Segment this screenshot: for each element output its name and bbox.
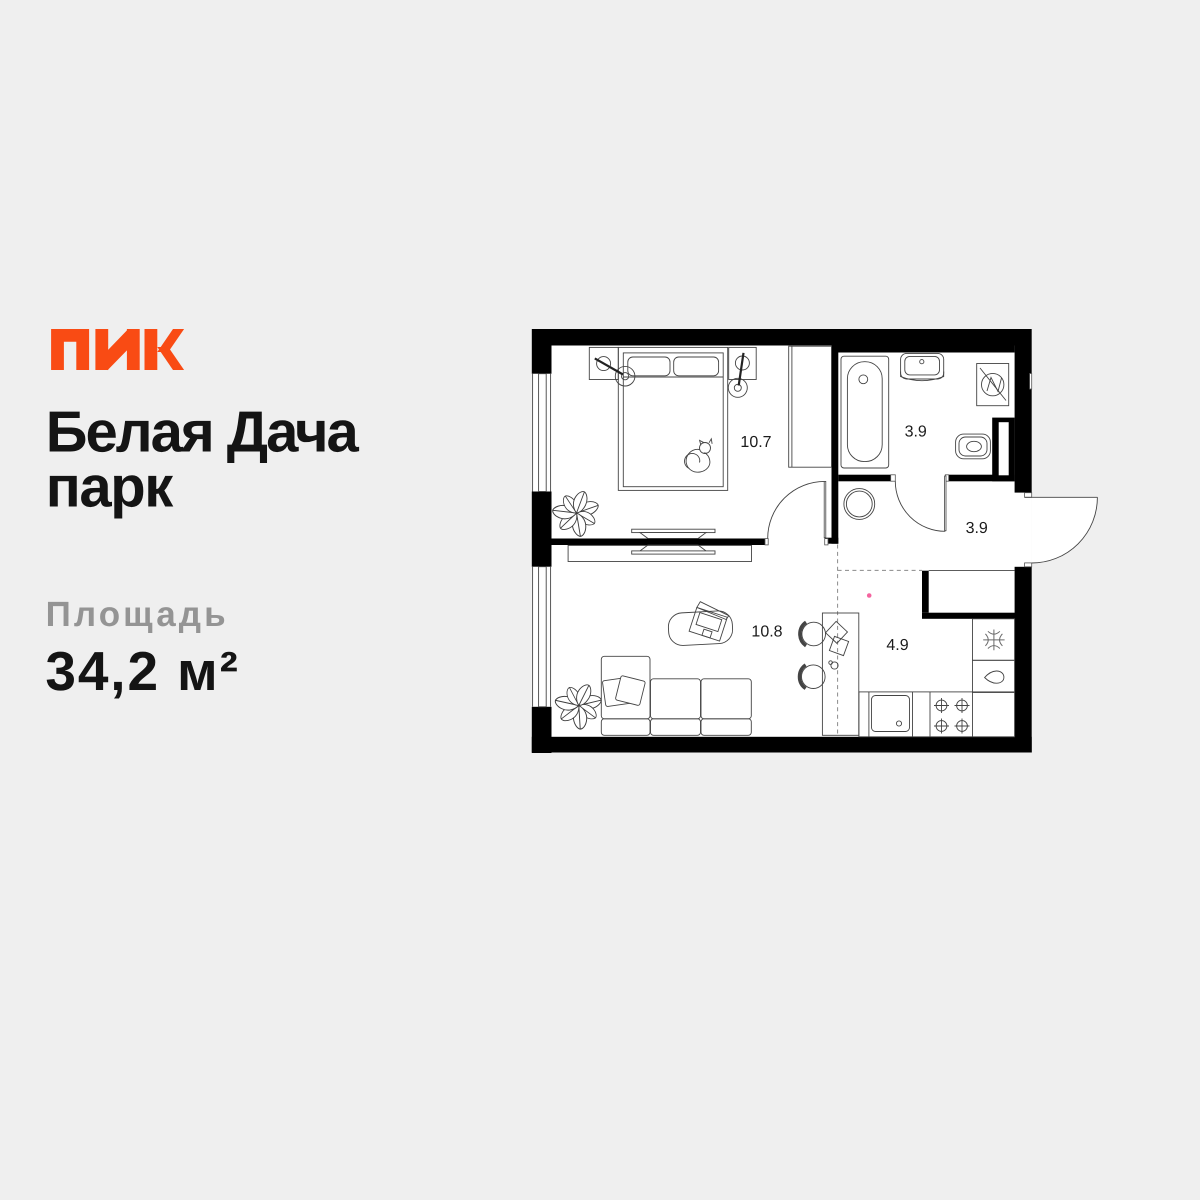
svg-text:10.7: 10.7 (740, 434, 771, 451)
svg-text:парк: парк (46, 454, 174, 519)
svg-text:3.9: 3.9 (966, 520, 988, 537)
svg-text:4.9: 4.9 (886, 637, 908, 654)
svg-text:3.9: 3.9 (905, 424, 927, 441)
svg-text:10.8: 10.8 (751, 623, 782, 640)
svg-text:34,2 м²: 34,2 м² (45, 640, 238, 702)
